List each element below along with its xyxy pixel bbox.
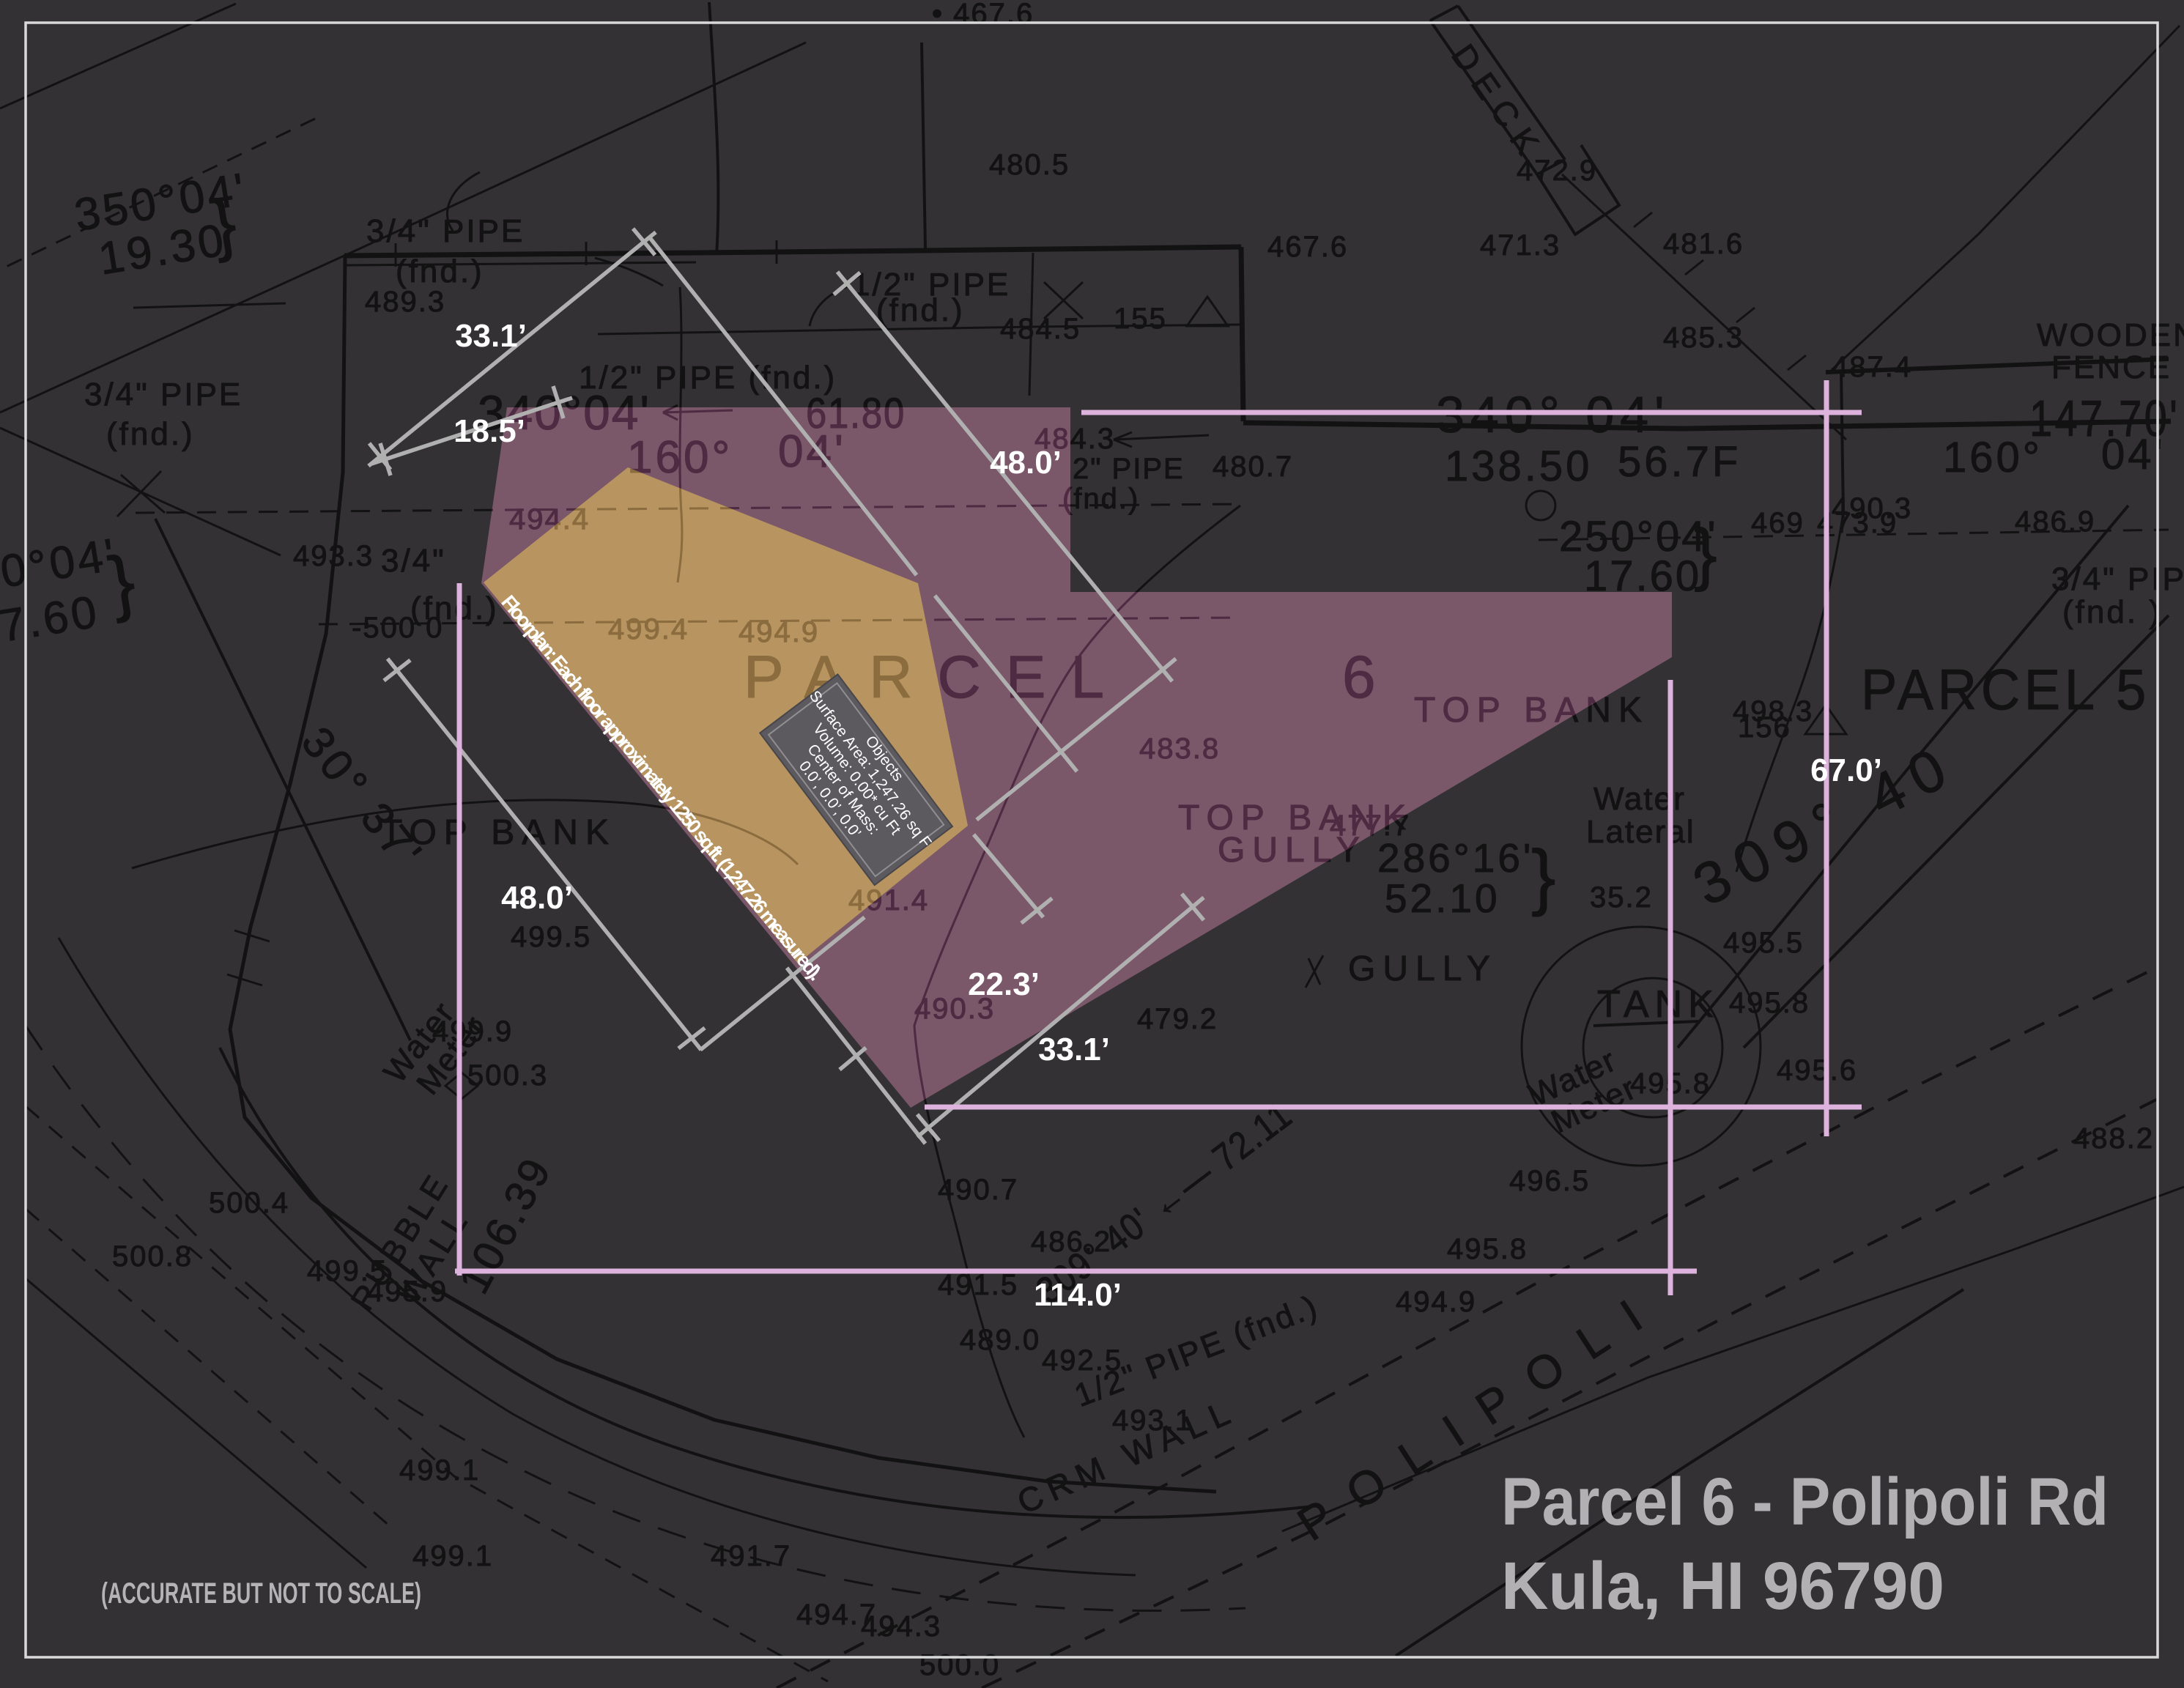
svg-text:18.5’: 18.5’ xyxy=(454,413,525,449)
svg-text:Kula, HI 96790: Kula, HI 96790 xyxy=(1501,1549,1944,1624)
svg-text:33.1’: 33.1’ xyxy=(1038,1032,1110,1067)
svg-text:114.0’: 114.0’ xyxy=(1034,1277,1122,1313)
svg-text:22.3’: 22.3’ xyxy=(968,966,1040,1002)
svg-text:48.0’: 48.0’ xyxy=(501,880,573,916)
svg-text:(ACCURATE BUT NOT TO SCALE): (ACCURATE BUT NOT TO SCALE) xyxy=(101,1577,421,1610)
svg-text:Parcel 6 - Polipoli Rd: Parcel 6 - Polipoli Rd xyxy=(1501,1465,2109,1539)
svg-text:67.0’: 67.0’ xyxy=(1810,752,1882,788)
svg-text:48.0’: 48.0’ xyxy=(990,445,1062,481)
svg-text:33.1’: 33.1’ xyxy=(455,318,527,354)
